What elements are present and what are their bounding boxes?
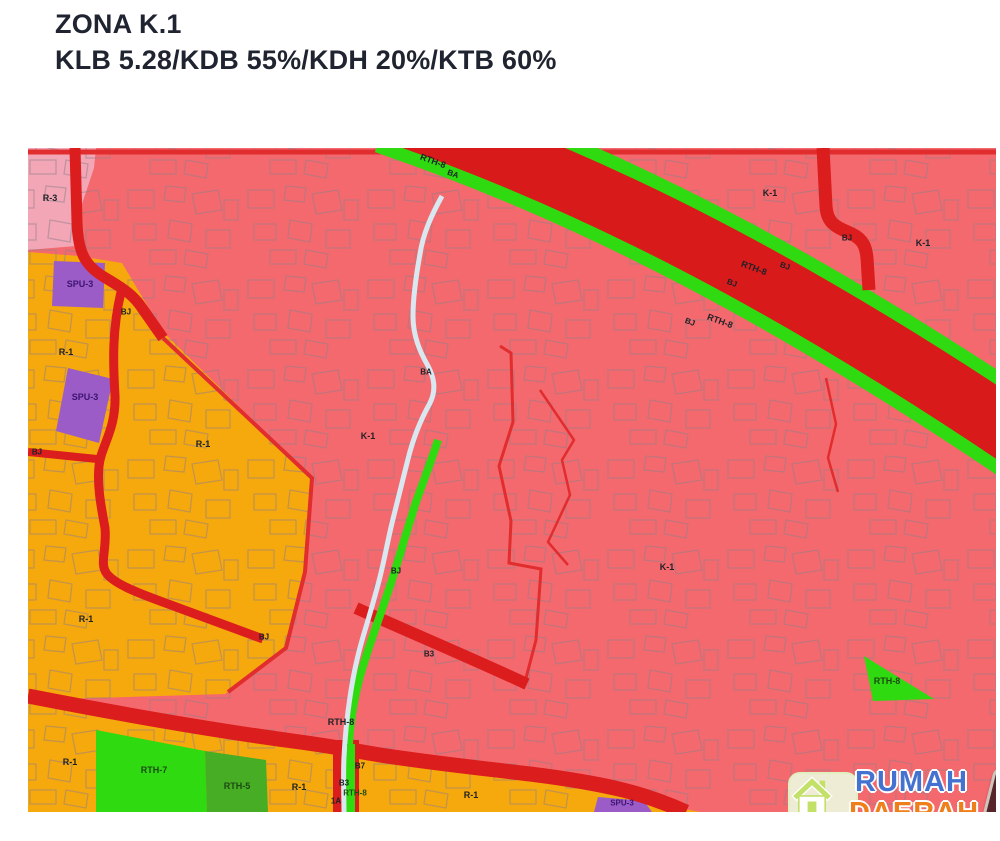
zone-label: BJ xyxy=(259,633,269,642)
zone-label: RTH-8 xyxy=(419,152,447,170)
zone-label: B3 xyxy=(424,650,434,659)
zone-label: B7 xyxy=(355,762,365,771)
zone-label: K-1 xyxy=(916,238,931,248)
zone-label: 1A xyxy=(331,797,341,806)
zone-label: R-1 xyxy=(79,614,94,624)
zone-label: RTH-8 xyxy=(343,789,367,798)
zone-label: BJ xyxy=(726,277,739,289)
zone-label: BJ xyxy=(684,316,697,328)
zone-label: B3 xyxy=(339,779,349,788)
zone-label: BJ xyxy=(391,567,401,576)
zone-labels-layer: R-3SPU-3BJR-1SPU-3BJR-1R-1BJR-1RTH-7RTH-… xyxy=(28,148,996,812)
brand-rumah: RUMAH xyxy=(855,768,996,797)
zone-label: RTH-8 xyxy=(874,676,901,686)
document-page: ZONA K.1 KLB 5.28/KDB 55%/KDH 20%/KTB 60… xyxy=(0,0,1000,841)
zone-label: RTH-5 xyxy=(224,781,251,791)
zone-label: R-1 xyxy=(196,439,211,449)
zone-label: RTH-7 xyxy=(141,765,168,775)
zoning-map: R-3SPU-3BJR-1SPU-3BJR-1R-1BJR-1RTH-7RTH-… xyxy=(28,148,996,812)
home-icon xyxy=(788,772,858,812)
zone-metrics: KLB 5.28/KDB 55%/KDH 20%/KTB 60% xyxy=(55,42,557,78)
zone-label: K-1 xyxy=(361,431,376,441)
brand-name: RUMAH DAERAH xyxy=(855,768,996,812)
watermark-logo: RUMAH DAERAH .COM xyxy=(785,768,996,812)
zone-label: R-1 xyxy=(464,790,479,800)
zone-label: BJ xyxy=(842,234,852,243)
zone-label: R-1 xyxy=(63,757,78,767)
zone-label: BJ xyxy=(121,308,131,317)
com-badge-text: .COM xyxy=(994,782,996,812)
zone-label: K-1 xyxy=(660,562,675,572)
zone-label: SPU-3 xyxy=(72,392,99,402)
title-block: ZONA K.1 KLB 5.28/KDB 55%/KDH 20%/KTB 60… xyxy=(55,6,557,78)
zone-label: SPU-3 xyxy=(67,279,94,289)
zone-label: SPU-3 xyxy=(610,799,634,808)
zone-label: BJ xyxy=(779,260,792,272)
zone-label: BA xyxy=(446,168,460,180)
zone-label: R-1 xyxy=(292,782,307,792)
zone-label: BA xyxy=(420,368,432,377)
zone-label: RTH-8 xyxy=(740,259,768,277)
zone-label: RTH-8 xyxy=(328,717,355,727)
zone-label: RTH-8 xyxy=(706,312,734,330)
zone-label: BJ xyxy=(32,448,42,457)
zone-label: R-1 xyxy=(59,347,74,357)
zone-label: R-3 xyxy=(43,193,58,203)
zone-title: ZONA K.1 xyxy=(55,6,557,42)
brand-daerah: DAERAH xyxy=(849,799,996,812)
zone-label: K-1 xyxy=(763,188,778,198)
